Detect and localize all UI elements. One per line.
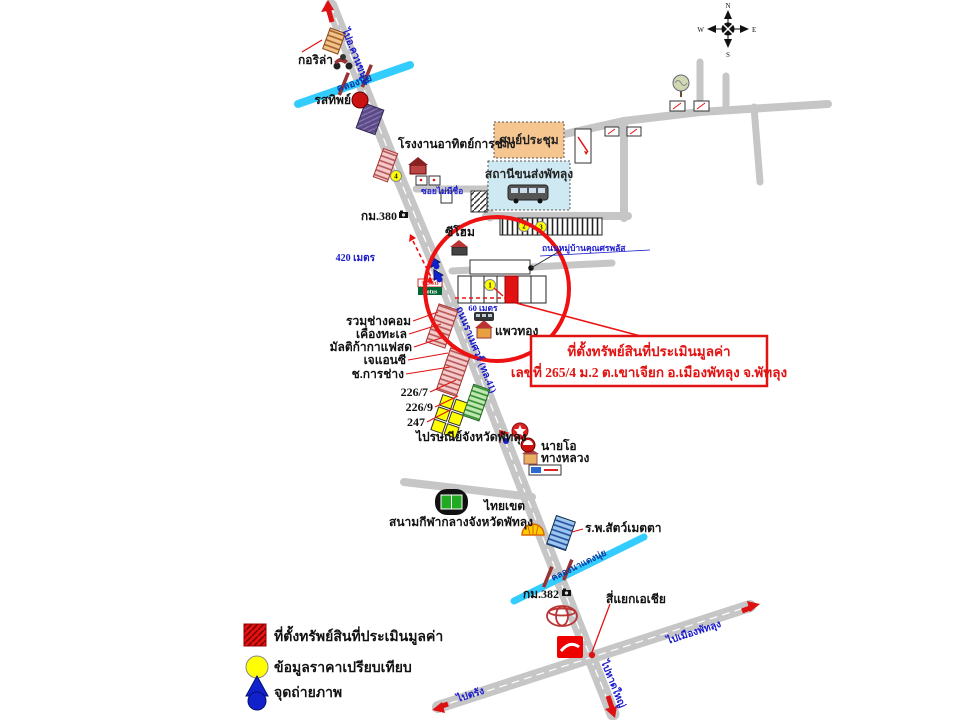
comparable-1-number: 1	[488, 282, 492, 290]
tree-icon	[673, 75, 689, 97]
rotsathip-logo	[352, 92, 368, 108]
shophouse-row	[458, 276, 546, 303]
legend-photo-label: จุดถ่ายภาพ	[274, 685, 342, 701]
label-thaikhet: ไทยเขต	[482, 498, 525, 513]
label-convention: ศูนย์ประชุม	[499, 133, 558, 148]
label-post-office: ไปรษณีย์จังหวัดพัทลุง	[414, 429, 527, 445]
building-behind-shops	[470, 260, 530, 274]
label-stadium: สนามกีฬากลางจังหวัดพัทลุง	[389, 515, 533, 530]
vet-hospital-building	[547, 516, 576, 551]
label-247: 247	[407, 415, 425, 429]
map-page: TESCO Lotus 4 2 3 1	[0, 0, 960, 720]
legend-photo-symbol	[246, 676, 268, 710]
label-60m: 60 เมตร	[468, 303, 498, 313]
stadium-road	[404, 482, 532, 497]
label-junction: สี่แยกเอเชีย	[606, 590, 666, 606]
property-callout: ที่ตั้งทรัพย์สินที่ประเมินมูลค่า เลขที่ …	[511, 336, 787, 386]
label-bus-terminal: สถานีขนส่งพัทลุง	[485, 167, 573, 182]
legend-property-symbol	[244, 624, 266, 646]
building-green	[463, 384, 490, 421]
legend: ที่ตั้งทรัพย์สินที่ประเมินมูลค่า ข้อมูลร…	[244, 624, 443, 710]
label-420m: 420 เมตร	[336, 253, 376, 264]
label-vet: ร.พ.สัตว์เมตตา	[585, 521, 662, 535]
paewthong-shrine-icon	[475, 320, 493, 338]
roadside-sign	[529, 465, 561, 475]
compass-s: S	[726, 51, 730, 59]
comparable-4-number: 4	[394, 173, 398, 181]
label-ruamchang: รวมช่างคอม	[346, 314, 411, 328]
honda-logo	[557, 636, 583, 658]
label-soi: ซอยไม่มีชื่อ	[421, 184, 463, 196]
callout-line2: เลขที่ 265/4 ม.2 ต.เขาเจียก อ.เมืองพัทลุ…	[511, 362, 787, 381]
label-village-road: ถนนหมู่บ้านคุณศรพลัส	[542, 243, 626, 254]
label-seehome: ซีโฮม	[445, 224, 475, 239]
building-with-red-arrow	[575, 129, 591, 163]
branch-road-3	[754, 107, 760, 182]
label-2267: 226/7	[401, 385, 428, 399]
label-km382: กม.382	[523, 587, 559, 601]
pointer-top-building	[302, 40, 322, 52]
label-factory: โรงงานอาทิตย์การช่าง	[397, 136, 516, 151]
label-chokanchang: ช.การช่าง	[352, 367, 404, 381]
compass-n: N	[725, 2, 730, 10]
label-gorilla: กอริล่า	[298, 53, 333, 67]
building-diagonal-hatch	[471, 191, 487, 212]
label-thangluang: ทางหลวง	[541, 451, 590, 465]
legend-property-label: ที่ตั้งทรัพย์สินที่ประเมินมูลค่า	[274, 625, 443, 645]
small-bus-icon	[474, 312, 494, 321]
compass-e: E	[752, 26, 756, 34]
label-2269: 226/9	[406, 400, 433, 414]
label-km380: กม.380	[361, 209, 397, 223]
legend-comparable-symbol	[246, 656, 268, 678]
property-location-map: TESCO Lotus 4 2 3 1	[0, 0, 960, 720]
label-multika: มัลติก้ากาแฟสด	[330, 340, 413, 354]
callout-line1: ที่ตั้งทรัพย์สินที่ประเมินมูลค่า	[567, 341, 730, 360]
compass-w: W	[697, 26, 704, 34]
label-khueangthale: เคื่องทะเล	[356, 325, 407, 341]
seehome-house-icon	[450, 240, 468, 255]
stadium-icon	[435, 489, 468, 515]
factory-house-icon	[408, 157, 428, 174]
legend-comparable-label: ข้อมูลราคาเปรียบเทียบ	[274, 660, 412, 676]
label-jandc: เจแอนซี	[364, 353, 406, 367]
compass-rose: N S W E	[697, 2, 756, 59]
label-rotsathip: รสทิพย์	[314, 93, 351, 107]
